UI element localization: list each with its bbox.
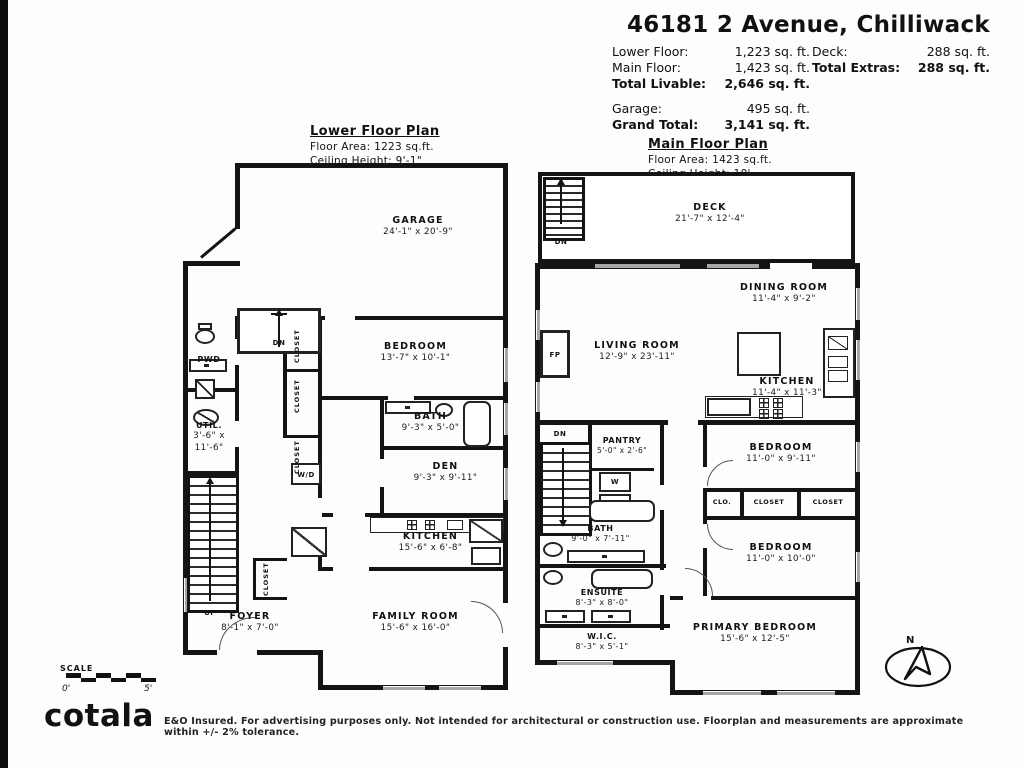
toilet-icon xyxy=(543,570,563,585)
stat-garage: Garage: 495 sq. ft. xyxy=(612,101,810,117)
door-opening xyxy=(235,421,239,447)
room-deck: DECK 21'-7" x 12'-4" xyxy=(640,202,780,226)
kitchen-island xyxy=(737,332,781,376)
scan-edge-artifact xyxy=(0,0,8,768)
lower-plan-floor-area: Floor Area: 1223 sq.ft. xyxy=(310,141,440,153)
stair-arrow xyxy=(209,483,211,601)
scale-steps xyxy=(66,678,156,683)
disclaimer-text: E&O Insured. For advertising purposes on… xyxy=(164,716,992,738)
lower-plan-title-block: Lower Floor Plan Floor Area: 1223 sq.ft.… xyxy=(310,124,440,167)
wall xyxy=(535,624,670,628)
dn-label: DN xyxy=(543,238,579,246)
window xyxy=(707,264,759,268)
room-bath: BATH 9'-3" x 5'-0" xyxy=(368,411,493,435)
entry-door-opening xyxy=(217,650,257,655)
closet-label: CLOSET xyxy=(293,439,301,475)
room-primary: PRIMARY BEDROOM 15'-6" x 12'-5" xyxy=(665,622,845,646)
stat-grand-total: Grand Total: 3,141 sq. ft. xyxy=(612,117,810,133)
bathtub-icon xyxy=(589,500,655,522)
stat-total-livable: Total Livable: 2,646 sq. ft. xyxy=(612,76,810,92)
window xyxy=(504,348,509,382)
window xyxy=(856,552,861,582)
stove-icon xyxy=(707,398,751,416)
scale-track xyxy=(66,673,156,682)
window xyxy=(504,403,509,435)
wall xyxy=(592,468,654,471)
burner-icon xyxy=(773,409,783,419)
scale-bar: SCALE 0' 5' xyxy=(58,664,168,696)
bathtub-icon xyxy=(591,569,653,589)
room-bedroom-upper: BEDROOM 11'-0" x 9'-11" xyxy=(707,442,855,466)
wall xyxy=(660,425,664,485)
sink-icon xyxy=(562,615,567,618)
wall xyxy=(253,558,287,561)
wall xyxy=(283,369,322,372)
window xyxy=(536,382,541,412)
arrow-up-icon xyxy=(557,178,565,185)
toilet-tank-icon xyxy=(198,323,212,330)
room-kitchen-main: KITCHEN 11'-4" x 11'-3" xyxy=(713,376,861,400)
wall xyxy=(855,263,860,695)
wall xyxy=(660,510,664,570)
door-opening xyxy=(333,567,369,571)
window xyxy=(557,661,613,666)
door-opening xyxy=(325,316,355,320)
wall xyxy=(283,435,322,438)
closet-label: CLOSET xyxy=(801,498,855,506)
burner-icon xyxy=(759,409,769,419)
lower-plan-title: Lower Floor Plan xyxy=(310,124,440,139)
compass: N xyxy=(880,632,956,694)
closet-label: CLOSET xyxy=(293,325,301,367)
closet-label: CLOSET xyxy=(293,375,301,417)
scale-start: 0' xyxy=(62,684,70,694)
clo-label: CLO. xyxy=(705,498,739,506)
deck-staircase xyxy=(543,177,585,241)
window xyxy=(777,691,835,696)
sink-icon xyxy=(447,520,463,530)
lower-floor-plan: DN UP W/D GARAGE 24'-1" x 20'-9" xyxy=(183,163,510,700)
window xyxy=(439,686,481,691)
door-swing-arc xyxy=(685,568,713,596)
door-opening xyxy=(380,459,384,487)
room-pantry: PANTRY 5'-0" x 2'-6" xyxy=(590,436,654,456)
wall xyxy=(703,488,860,492)
room-ensuite: ENSUITE 8'-3" x 8'-0" xyxy=(543,588,661,609)
window xyxy=(703,691,761,696)
deck-door-opening xyxy=(770,263,812,269)
door-opening xyxy=(668,420,698,425)
cotala-logo: cotala xyxy=(44,698,154,734)
patio-door-opening xyxy=(503,603,508,647)
window xyxy=(383,686,425,691)
room-dining: DINING ROOM 11'-4" x 9'-2" xyxy=(710,282,858,306)
utility-fixture-icon xyxy=(195,379,215,399)
burner-icon xyxy=(407,520,417,530)
floorplan-sheet: 46181 2 Avenue, Chilliwack Lower Floor: … xyxy=(0,0,1024,768)
arrow-up-icon xyxy=(275,309,283,316)
main-plan-title: Main Floor Plan xyxy=(648,137,772,152)
door-opening xyxy=(333,513,365,517)
arrow-up-icon xyxy=(206,477,214,484)
stat-lower-floor: Lower Floor: 1,223 sq. ft. xyxy=(612,44,810,60)
scale-end: 5' xyxy=(144,684,152,694)
garage-door-leaf xyxy=(200,227,236,258)
wall xyxy=(535,564,666,568)
room-foyer: FOYER 8'-1" x 7'-0" xyxy=(185,611,315,635)
wall xyxy=(322,396,508,400)
door-opening xyxy=(683,596,711,600)
sink-icon xyxy=(602,555,607,558)
room-pwd: PWD xyxy=(183,355,235,365)
wall xyxy=(703,516,860,520)
room-wic: W.I.C. 8'-3" x 5'-1" xyxy=(543,632,661,653)
wall xyxy=(380,446,508,450)
stat-main-floor: Main Floor: 1,423 sq. ft. xyxy=(612,60,810,76)
stair-arrow xyxy=(562,448,564,520)
wall xyxy=(253,558,256,600)
room-garage: GARAGE 24'-1" x 20'-9" xyxy=(333,215,503,239)
main-floor-plan: DN xyxy=(535,170,860,700)
stair-arrow xyxy=(560,182,562,224)
main-plan-floor-area: Floor Area: 1423 sq.ft. xyxy=(648,154,772,166)
stat-deck: Deck: 288 sq. ft. xyxy=(812,44,990,60)
wall xyxy=(235,163,240,229)
wall xyxy=(183,261,240,266)
north-label: N xyxy=(906,635,914,646)
window xyxy=(504,468,509,500)
stove-icon xyxy=(291,527,327,557)
sink-icon xyxy=(608,615,613,618)
door-opening xyxy=(388,396,414,400)
sink-icon xyxy=(405,406,410,409)
closet-label: CLOSET xyxy=(743,498,795,506)
room-den: DEN 9'-3" x 9'-11" xyxy=(388,461,503,485)
burner-icon xyxy=(425,520,435,530)
wall xyxy=(235,163,508,168)
wall xyxy=(253,597,287,600)
stats-left-column: Lower Floor: 1,223 sq. ft. Main Floor: 1… xyxy=(612,44,810,133)
washer-label: W xyxy=(601,478,629,486)
toilet-icon xyxy=(195,329,215,344)
wall xyxy=(318,650,323,690)
stats-right-column: Deck: 288 sq. ft. Total Extras: 288 sq. … xyxy=(812,44,990,76)
room-kitchen: KITCHEN 15'-6" x 6'-8" xyxy=(363,531,498,555)
window xyxy=(856,442,861,472)
stat-total-extras: Total Extras: 288 sq. ft. xyxy=(812,60,990,76)
drawer-icon xyxy=(828,356,848,368)
sink-icon xyxy=(828,336,848,350)
room-bedroom: BEDROOM 13'-7" x 10'-1" xyxy=(328,341,503,365)
north-arrow-icon: N xyxy=(880,632,956,694)
room-util: UTIL. 3'-6" x 11'-6" xyxy=(183,421,235,454)
window xyxy=(856,340,861,380)
room-living: LIVING ROOM 12'-9" x 23'-11" xyxy=(563,340,711,364)
window xyxy=(595,264,680,268)
washer-box: W xyxy=(599,472,631,492)
page-title: 46181 2 Avenue, Chilliwack xyxy=(607,12,990,38)
scale-label: SCALE xyxy=(60,664,93,673)
room-bedroom-lower: BEDROOM 11'-0" x 10'-0" xyxy=(707,542,855,566)
room-bath-main: BATH 9'-0" x 7'-11" xyxy=(543,524,658,545)
staircase-up xyxy=(187,475,239,613)
room-family: FAMILY ROOM 15'-6" x 16'-0" xyxy=(328,611,503,635)
dn-label: DN xyxy=(543,430,577,438)
closet-label: CLOSET xyxy=(262,561,270,597)
